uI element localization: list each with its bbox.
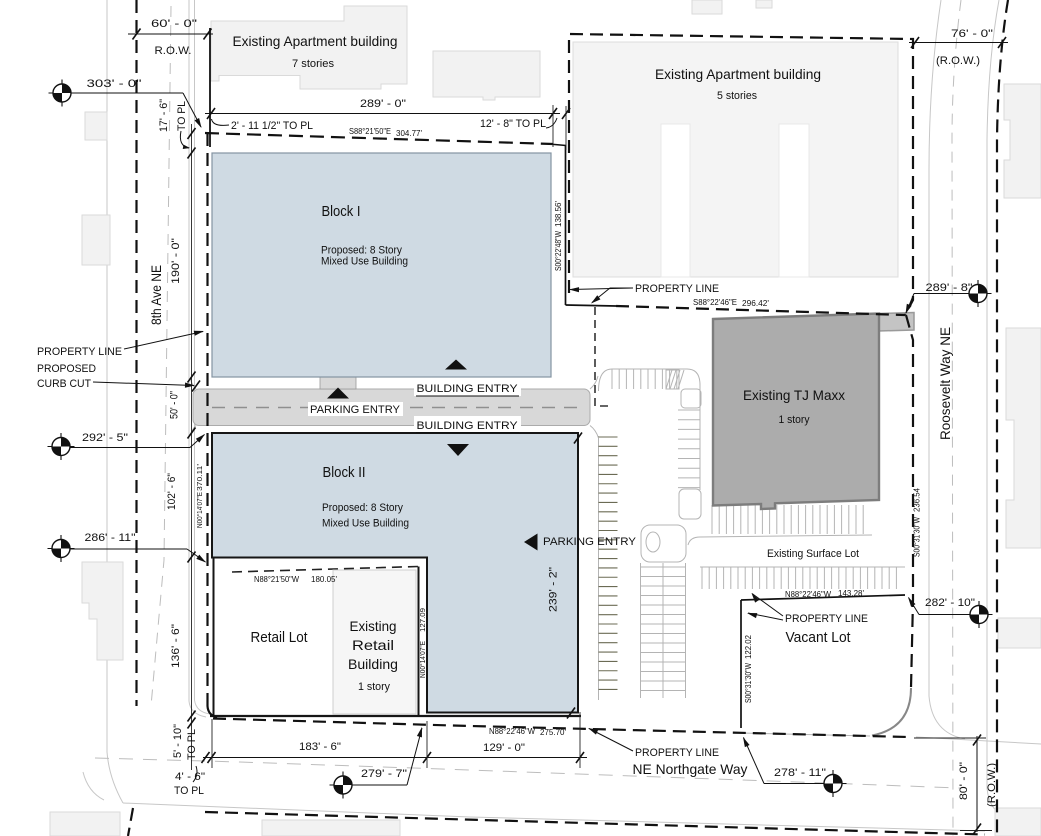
svg-text:370.11': 370.11' xyxy=(195,463,204,491)
svg-text:278' - 11": 278' - 11" xyxy=(774,767,826,779)
svg-text:S00°22'48"W: S00°22'48"W xyxy=(554,231,563,271)
svg-text:279' - 7": 279' - 7" xyxy=(361,768,407,780)
svg-text:138.56': 138.56' xyxy=(554,201,563,227)
svg-text:5' - 10": 5' - 10" xyxy=(172,724,184,758)
svg-text:1 story: 1 story xyxy=(779,414,810,426)
svg-text:PROPERTY LINE: PROPERTY LINE xyxy=(635,747,719,759)
svg-text:5 stories: 5 stories xyxy=(717,90,757,102)
svg-text:N00°14'07"E: N00°14'07"E xyxy=(418,641,427,678)
svg-text:Existing Apartment building: Existing Apartment building xyxy=(655,66,821,82)
svg-text:TO PL: TO PL xyxy=(174,785,204,797)
svg-text:239' - 2": 239' - 2" xyxy=(548,567,560,612)
svg-text:Block I: Block I xyxy=(322,203,361,220)
svg-text:Block II: Block II xyxy=(323,464,366,481)
svg-text:304.77': 304.77' xyxy=(396,129,422,138)
svg-text:CURB CUT: CURB CUT xyxy=(37,378,91,390)
svg-text:PROPERTY LINE: PROPERTY LINE xyxy=(37,346,122,358)
svg-text:236.54: 236.54 xyxy=(913,487,922,512)
svg-text:BUILDING ENTRY: BUILDING ENTRY xyxy=(417,383,519,395)
svg-text:Building: Building xyxy=(348,656,398,672)
svg-text:S88°21'50"E: S88°21'50"E xyxy=(349,127,391,136)
svg-text:S00°31'30"W: S00°31'30"W xyxy=(913,517,922,557)
svg-text:7 stories: 7 stories xyxy=(292,58,334,70)
svg-text:PROPERTY LINE: PROPERTY LINE xyxy=(635,283,719,295)
svg-text:Existing: Existing xyxy=(350,618,397,634)
svg-text:80' - 0": 80' - 0" xyxy=(958,762,970,800)
svg-text:2' - 11 1/2" TO PL: 2' - 11 1/2" TO PL xyxy=(231,120,313,132)
svg-text:292' - 5": 292' - 5" xyxy=(82,432,128,444)
svg-text:12' - 8" TO PL: 12' - 8" TO PL xyxy=(480,118,546,130)
svg-text:Retail: Retail xyxy=(352,637,394,653)
svg-text:143.28': 143.28' xyxy=(838,589,864,598)
svg-text:(R.O.W.): (R.O.W.) xyxy=(986,763,998,807)
svg-text:50' - 0": 50' - 0" xyxy=(169,391,181,419)
svg-text:296.42': 296.42' xyxy=(742,299,769,308)
svg-text:Roosevelt Way NE: Roosevelt Way NE xyxy=(937,327,953,440)
svg-text:S88°22'46"E: S88°22'46"E xyxy=(693,298,737,307)
svg-text:TO PL: TO PL xyxy=(186,729,198,760)
svg-text:N88°21'50"W: N88°21'50"W xyxy=(254,575,299,584)
svg-text:N88°22'46"W: N88°22'46"W xyxy=(489,727,535,736)
svg-text:286' - 11": 286' - 11" xyxy=(85,532,136,544)
svg-text:183' - 6": 183' - 6" xyxy=(299,741,341,753)
svg-text:180.05': 180.05' xyxy=(311,575,337,584)
svg-text:N88°22'46"W: N88°22'46"W xyxy=(785,590,831,599)
svg-text:1 story: 1 story xyxy=(358,681,390,693)
svg-text:Mixed Use Building: Mixed Use Building xyxy=(321,256,408,268)
svg-text:Vacant Lot: Vacant Lot xyxy=(786,629,852,646)
svg-text:Proposed: 8 Story: Proposed: 8 Story xyxy=(322,502,403,514)
svg-text:8th Ave NE: 8th Ave NE xyxy=(148,265,164,325)
svg-text:Existing TJ Maxx: Existing TJ Maxx xyxy=(743,387,845,403)
svg-text:17' - 6": 17' - 6" xyxy=(158,99,170,132)
svg-text:289' - 0": 289' - 0" xyxy=(360,98,406,110)
svg-text:R.O.W.: R.O.W. xyxy=(155,45,192,57)
svg-text:303' - 0": 303' - 0" xyxy=(87,78,142,90)
svg-text:60' - 0": 60' - 0" xyxy=(151,18,197,30)
svg-text:282' - 10": 282' - 10" xyxy=(925,597,975,609)
svg-text:190' - 0": 190' - 0" xyxy=(170,238,182,284)
svg-text:PARKING ENTRY: PARKING ENTRY xyxy=(310,404,401,416)
svg-text:N00°14'07"E: N00°14'07"E xyxy=(195,492,204,528)
svg-text:PROPOSED: PROPOSED xyxy=(37,363,96,375)
svg-text:275.70': 275.70' xyxy=(540,728,566,737)
svg-text:127.09: 127.09 xyxy=(418,608,427,632)
svg-text:PARKING ENTRY: PARKING ENTRY xyxy=(543,536,637,548)
svg-text:289' - 8": 289' - 8" xyxy=(926,282,973,294)
svg-text:122.02: 122.02 xyxy=(744,634,753,659)
svg-text:4' - 6": 4' - 6" xyxy=(175,771,205,783)
svg-text:76' - 0": 76' - 0" xyxy=(951,28,993,40)
svg-text:TO PL: TO PL xyxy=(176,101,188,131)
svg-text:Existing Apartment building: Existing Apartment building xyxy=(233,33,398,49)
svg-text:(R.O.W.): (R.O.W.) xyxy=(936,55,980,67)
svg-text:136' - 6": 136' - 6" xyxy=(170,624,182,668)
svg-text:Retail Lot: Retail Lot xyxy=(251,629,309,646)
svg-text:PROPERTY LINE: PROPERTY LINE xyxy=(785,613,868,625)
svg-text:BUILDING ENTRY: BUILDING ENTRY xyxy=(417,420,519,432)
svg-text:S00°31'30"W: S00°31'30"W xyxy=(744,663,753,703)
svg-text:129' - 0": 129' - 0" xyxy=(483,742,525,754)
svg-text:NE Northgate Way: NE Northgate Way xyxy=(633,761,748,777)
svg-text:102' - 6": 102' - 6" xyxy=(166,473,178,510)
svg-text:Existing Surface Lot: Existing Surface Lot xyxy=(767,548,859,560)
svg-text:Mixed Use Building: Mixed Use Building xyxy=(322,518,409,530)
